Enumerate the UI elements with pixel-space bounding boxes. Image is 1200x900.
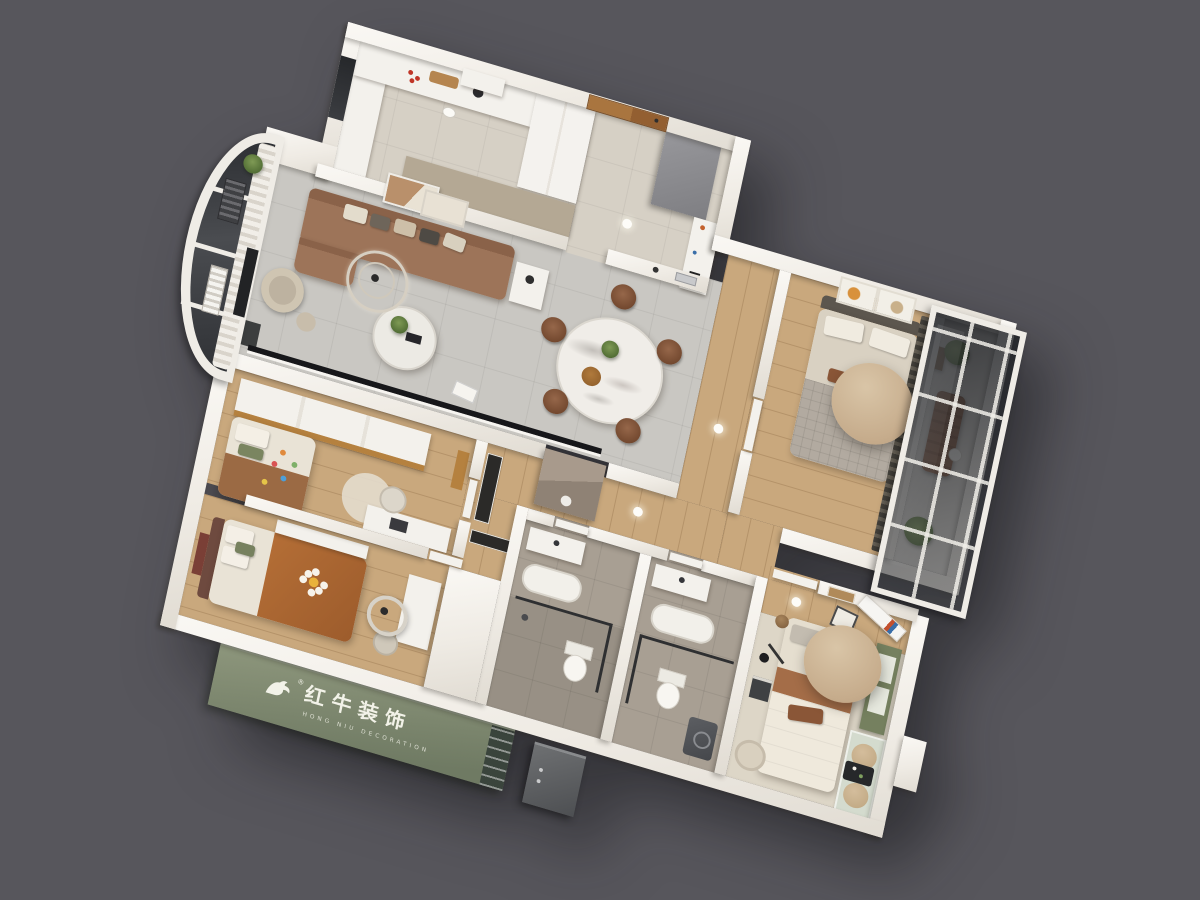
floorplan: ® 红牛装饰 HONG NIU DECORATION	[88, 0, 1038, 900]
brand-registered-mark: ®	[297, 678, 305, 687]
ac-vent-dot-1	[539, 768, 544, 773]
exterior-ac-unit	[522, 742, 586, 818]
brand-panel-end-glass	[479, 725, 515, 791]
daisy-petal-1	[311, 567, 320, 577]
floorplan-shadow: ® 红牛装饰 HONG NIU DECORATION	[0, 0, 1200, 900]
ac-vent-dot-2	[536, 779, 541, 784]
bull-logo-icon	[261, 672, 295, 706]
render-canvas: ® 红牛装饰 HONG NIU DECORATION	[0, 0, 1200, 900]
